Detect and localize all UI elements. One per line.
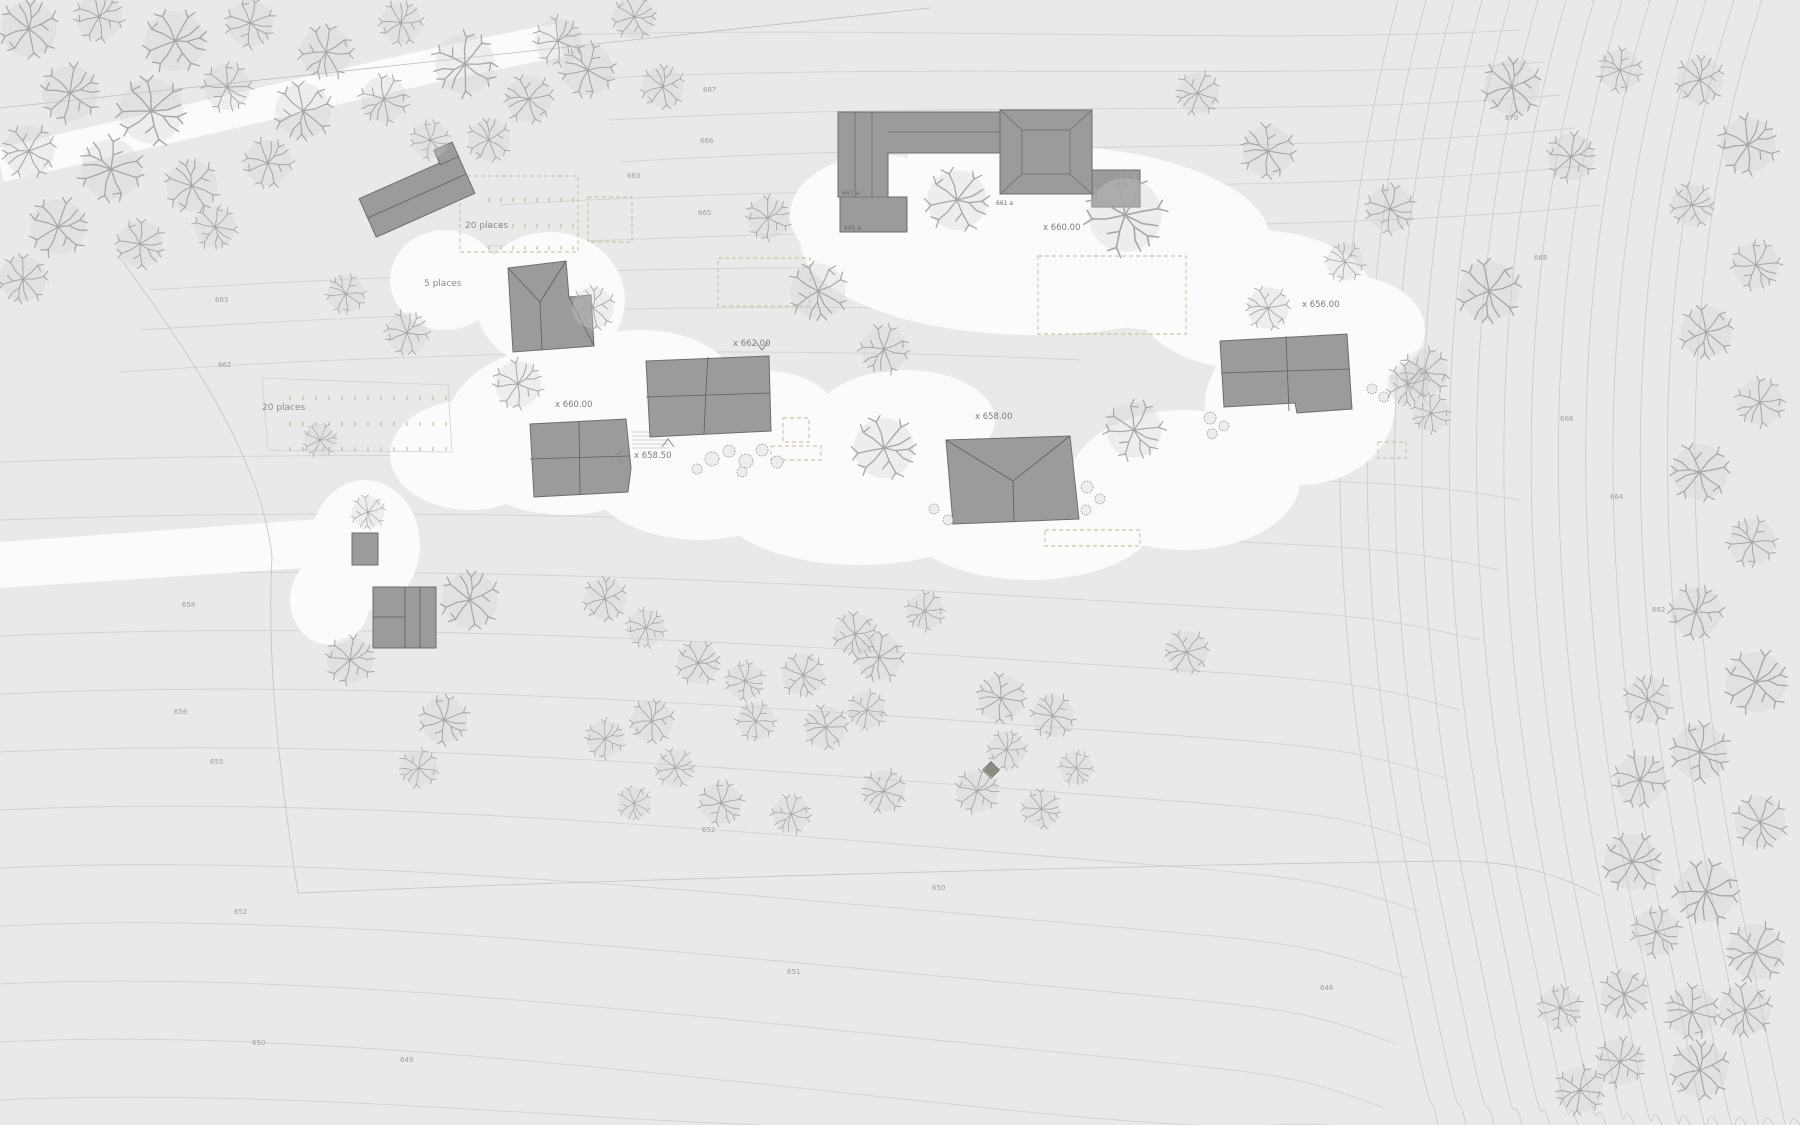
parking-count-label: 5 places	[424, 279, 462, 289]
building-tilted	[353, 142, 474, 237]
contour-elevation-label: 663	[627, 172, 640, 180]
contour-elevation-label: 650	[252, 1039, 265, 1047]
site-plan-svg: x 660.00 x 662.00 x 660.00 x 658.50 x 65…	[0, 0, 1800, 1125]
contour-elevation-label: 666	[1560, 415, 1574, 423]
contour-elevation-label: 646	[1320, 984, 1334, 992]
contour-elevation-label: 649	[400, 1056, 413, 1064]
contour-elevation-label: 652	[234, 908, 247, 916]
contour-elevation-label: 658	[182, 601, 195, 609]
spot-elevation-label: x 662.00	[733, 339, 770, 349]
spot-elevation-label: x 660.00	[1043, 223, 1080, 233]
building-level-label: 661 a	[996, 200, 1013, 207]
contour-elevation-label: 663	[215, 296, 228, 304]
contour-elevation-label: 665	[698, 209, 711, 217]
spot-elevation-label: x 658.00	[975, 412, 1012, 422]
contour-elevation-label: 666	[700, 137, 714, 145]
cleared-paths	[0, 40, 1425, 645]
contour-elevation-label: 651	[787, 968, 800, 976]
building-chalet-west	[530, 419, 631, 497]
building-shed	[352, 533, 378, 565]
parking-count-label: 20 places	[262, 403, 306, 413]
building-chalet-central	[646, 356, 771, 437]
contour-elevation-label: 670	[1505, 114, 1518, 122]
contour-elevation-label: 664	[1610, 493, 1624, 501]
spot-elevation-label: x 658.50	[634, 451, 671, 461]
building-level-label: 667 a	[842, 190, 859, 197]
contour-elevation-label: 662	[1652, 606, 1665, 614]
contour-elevation-label: 668	[1534, 254, 1547, 262]
building-level-label: 665 a	[844, 225, 861, 232]
contour-elevation-label: 662	[218, 361, 231, 369]
building-chalet-far-east	[1220, 334, 1352, 413]
contour-elevation-label: 656	[174, 708, 188, 716]
contour-elevation-label: 652	[702, 826, 715, 834]
contour-elevation-label: 650	[932, 884, 945, 892]
parking-count-label: 20 places	[465, 221, 509, 231]
site-plan: x 660.00 x 662.00 x 660.00 x 658.50 x 65…	[0, 0, 1800, 1125]
contour-elevation-label: 655	[210, 758, 223, 766]
spot-elevation-label: x 656.00	[1302, 300, 1339, 310]
building-chalet-east	[946, 436, 1079, 524]
building-lower-left	[373, 587, 436, 648]
contour-elevation-label: 667	[703, 86, 716, 94]
spot-elevation-label: x 660.00	[555, 400, 592, 410]
